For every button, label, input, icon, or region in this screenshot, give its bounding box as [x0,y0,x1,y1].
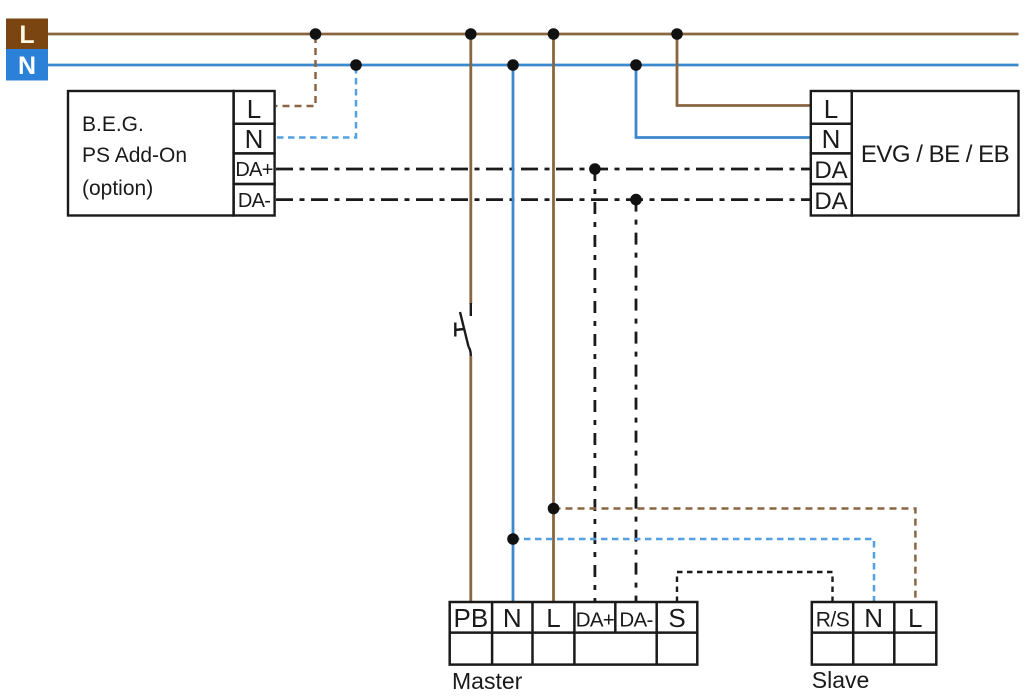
svg-text:N: N [245,124,264,154]
svg-text:DA+: DA+ [235,159,272,181]
svg-text:L: L [19,21,34,49]
svg-text:S: S [668,603,685,633]
svg-text:PS Add-On: PS Add-On [82,144,187,167]
svg-text:L: L [908,603,922,633]
svg-text:DA: DA [814,157,847,184]
svg-text:R/S: R/S [816,609,850,632]
svg-text:L: L [824,94,838,124]
svg-text:N: N [503,603,522,633]
svg-text:DA+: DA+ [576,609,614,632]
svg-text:DA-: DA- [238,190,270,212]
svg-text:DA: DA [814,188,847,215]
svg-text:DA-: DA- [619,609,652,632]
svg-text:Master: Master [452,668,523,694]
svg-text:(option): (option) [82,177,153,200]
svg-text:B.E.G.: B.E.G. [82,113,144,136]
svg-text:L: L [247,94,261,124]
svg-text:PB: PB [454,603,489,633]
svg-text:Slave: Slave [812,667,870,693]
svg-text:N: N [864,603,883,633]
svg-text:N: N [822,124,841,154]
svg-text:EVG / BE / EB: EVG / BE / EB [861,141,1009,168]
svg-text:L: L [546,603,560,633]
svg-text:N: N [18,52,36,80]
